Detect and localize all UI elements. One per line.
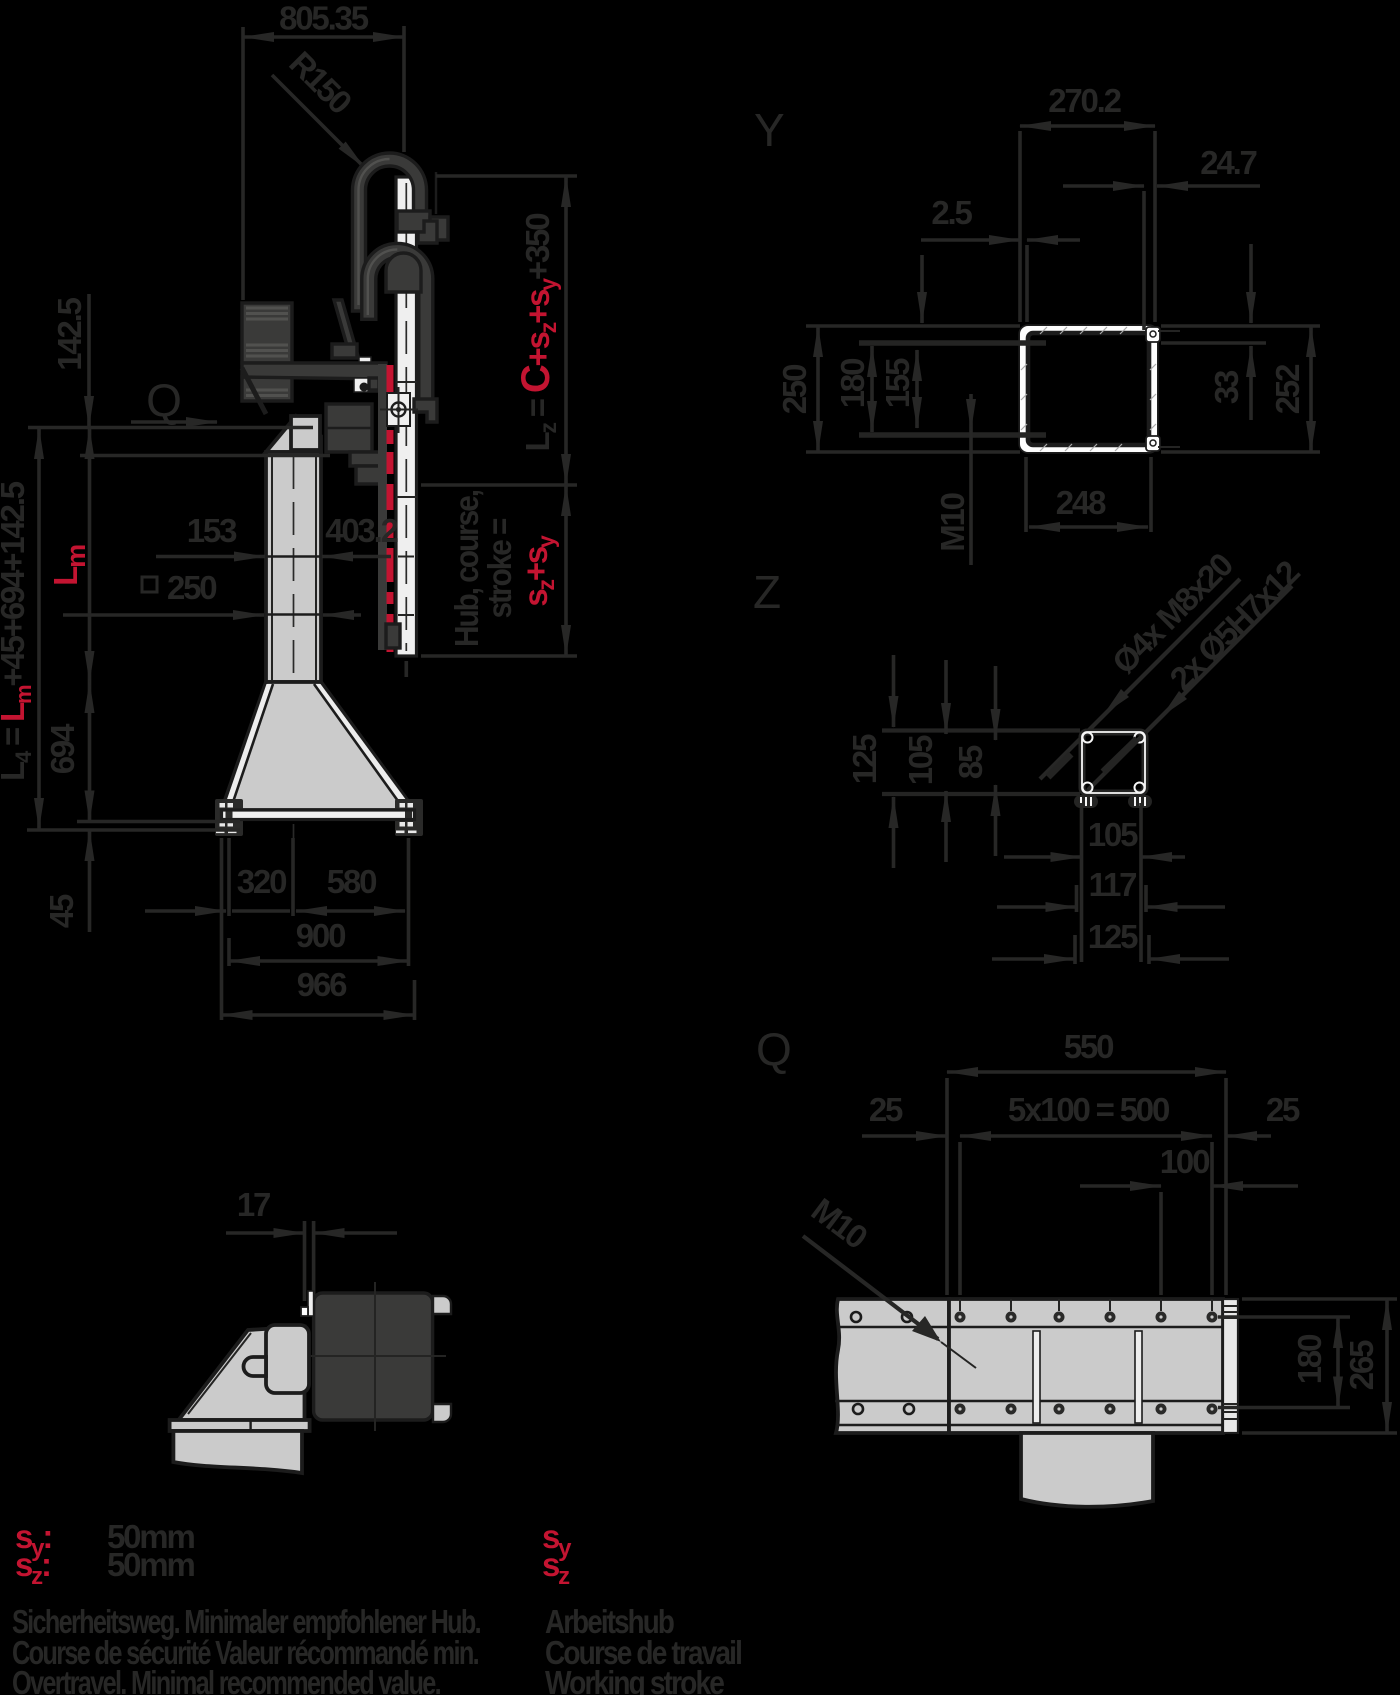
- svg-text:L4 = Lm+45+694+142.5: L4 = Lm+45+694+142.5: [0, 481, 36, 781]
- svg-text:100: 100: [1160, 1143, 1209, 1180]
- svg-text:403.2: 403.2: [325, 512, 398, 549]
- svg-text:248: 248: [1056, 484, 1106, 521]
- svg-text:25: 25: [869, 1091, 903, 1128]
- svg-text:Working stroke: Working stroke: [545, 1664, 725, 1695]
- svg-text:252: 252: [1269, 364, 1306, 414]
- svg-text:805.35: 805.35: [279, 0, 369, 37]
- svg-text:50mm: 50mm: [107, 1546, 194, 1583]
- svg-text:2.5: 2.5: [931, 194, 972, 231]
- svg-text:270.2: 270.2: [1048, 82, 1121, 119]
- svg-text:85: 85: [952, 745, 989, 779]
- svg-text:M10: M10: [934, 493, 971, 551]
- svg-text:17: 17: [237, 1186, 270, 1223]
- svg-text:24.7: 24.7: [1200, 144, 1256, 181]
- svg-text:142.5: 142.5: [51, 297, 88, 370]
- svg-text:Hub, course,: Hub, course,: [449, 491, 486, 647]
- svg-text:105: 105: [902, 735, 939, 785]
- svg-text:25: 25: [1266, 1091, 1300, 1128]
- svg-text:155: 155: [879, 358, 916, 408]
- svg-text:33: 33: [1208, 370, 1245, 404]
- svg-text:153: 153: [187, 512, 237, 549]
- svg-text:Overtravel. Minimal recommende: Overtravel. Minimal recommended value.: [12, 1664, 440, 1695]
- svg-text:180: 180: [834, 359, 871, 408]
- svg-text:5x100 = 500: 5x100 = 500: [1008, 1091, 1169, 1128]
- svg-text:580: 580: [327, 863, 376, 900]
- svg-text:250: 250: [167, 569, 216, 606]
- svg-text:550: 550: [1064, 1028, 1113, 1065]
- svg-text:265: 265: [1343, 1340, 1380, 1390]
- svg-text:125: 125: [846, 734, 883, 784]
- svg-text:900: 900: [296, 917, 345, 954]
- svg-text:105: 105: [1088, 816, 1138, 853]
- svg-text:966: 966: [297, 966, 347, 1003]
- svg-text:250: 250: [776, 365, 813, 414]
- svg-text:180: 180: [1291, 1335, 1328, 1384]
- svg-text:Q: Q: [756, 1023, 792, 1075]
- svg-text:stroke =: stroke =: [482, 518, 519, 619]
- svg-text:Q: Q: [146, 374, 182, 426]
- svg-text:Z: Z: [753, 566, 781, 618]
- svg-text:320: 320: [237, 863, 286, 900]
- svg-text:125: 125: [1088, 918, 1138, 955]
- svg-text:694: 694: [44, 723, 81, 774]
- svg-text:117: 117: [1089, 866, 1136, 903]
- svg-text:Y: Y: [754, 104, 785, 156]
- svg-text:45: 45: [43, 894, 80, 928]
